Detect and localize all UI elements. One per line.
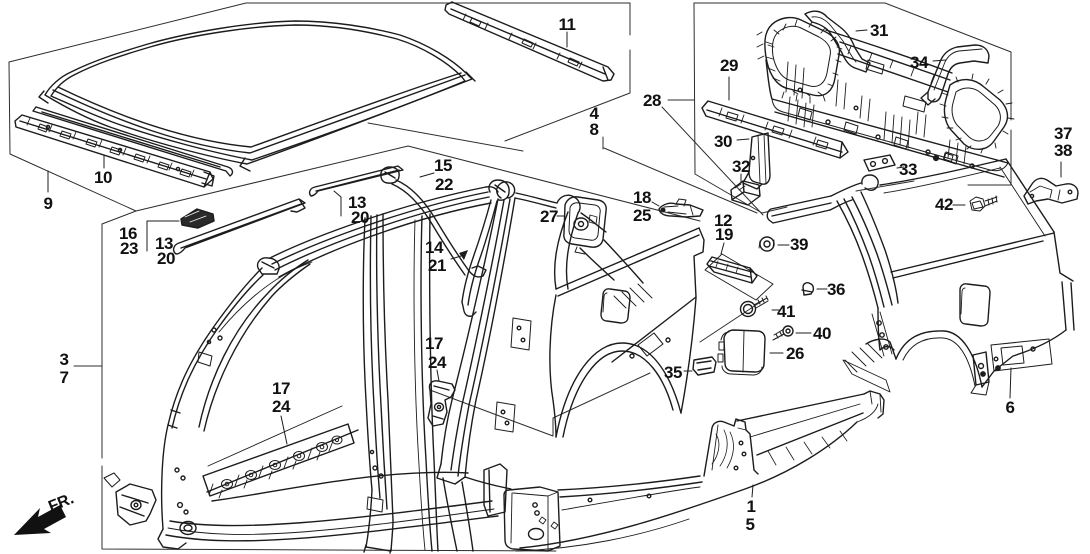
svg-text:42: 42	[935, 195, 953, 214]
svg-text:15: 15	[434, 156, 452, 175]
svg-text:5: 5	[746, 515, 755, 534]
svg-text:39: 39	[790, 235, 808, 254]
svg-text:29: 29	[720, 56, 738, 75]
svg-text:25: 25	[633, 206, 651, 225]
svg-text:28: 28	[643, 91, 661, 110]
svg-text:7: 7	[60, 368, 69, 387]
svg-text:26: 26	[786, 344, 804, 363]
svg-text:24: 24	[272, 397, 291, 416]
svg-text:33: 33	[899, 160, 917, 179]
svg-text:24: 24	[428, 353, 447, 372]
svg-text:32: 32	[732, 157, 750, 176]
svg-text:21: 21	[428, 256, 446, 275]
svg-text:35: 35	[664, 363, 682, 382]
svg-text:10: 10	[94, 168, 112, 187]
svg-text:27: 27	[540, 207, 558, 226]
svg-text:31: 31	[870, 21, 888, 40]
svg-text:30: 30	[714, 132, 732, 151]
svg-text:6: 6	[1006, 398, 1015, 417]
svg-text:19: 19	[715, 225, 733, 244]
svg-text:18: 18	[633, 188, 651, 207]
svg-text:1: 1	[747, 497, 756, 516]
svg-text:9: 9	[44, 194, 53, 213]
svg-text:22: 22	[435, 175, 453, 194]
svg-text:23: 23	[120, 239, 138, 258]
svg-text:14: 14	[425, 238, 444, 257]
svg-text:8: 8	[590, 120, 599, 139]
svg-text:36: 36	[827, 280, 845, 299]
svg-text:20: 20	[351, 208, 369, 227]
svg-text:17: 17	[425, 334, 443, 353]
svg-text:FR.: FR.	[46, 490, 76, 515]
svg-text:17: 17	[272, 379, 290, 398]
svg-text:20: 20	[157, 249, 175, 268]
svg-text:3: 3	[60, 350, 69, 369]
svg-text:40: 40	[813, 324, 831, 343]
svg-text:11: 11	[559, 15, 576, 34]
svg-text:38: 38	[1054, 141, 1072, 160]
svg-text:34: 34	[910, 53, 929, 72]
svg-text:41: 41	[777, 302, 795, 321]
